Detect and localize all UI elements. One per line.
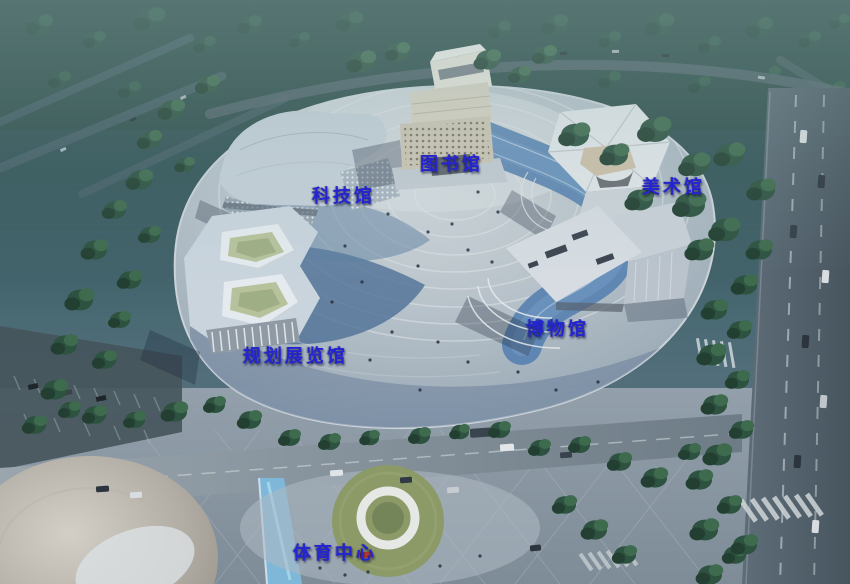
label-museum: 博物馆 <box>526 315 589 341</box>
label-library: 图书馆 <box>420 150 483 176</box>
mist-overlay <box>0 0 850 280</box>
label-planning-exhibition-hall: 规划展览馆 <box>243 342 348 368</box>
aerial-rendering-cultural-complex: 图书馆 科技馆 美术馆 博物馆 规划展览馆 体育中心 <box>0 0 850 584</box>
label-sports-center: 体育中心 <box>293 539 377 565</box>
label-art-museum: 美术馆 <box>642 173 705 199</box>
label-science-museum: 科技馆 <box>312 182 375 208</box>
rendering-canvas <box>0 0 850 584</box>
